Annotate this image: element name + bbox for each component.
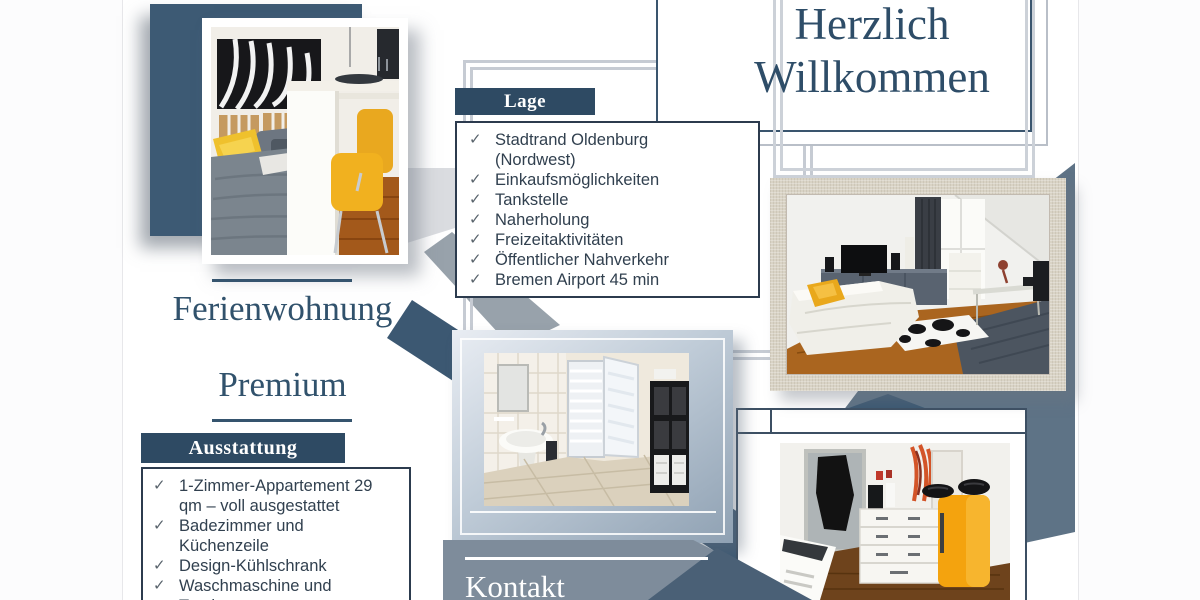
check-icon: ✓ — [469, 210, 495, 230]
welcome-title: Herzlich Willkommen — [686, 0, 1058, 104]
brand-title-line1: Ferienwohnung — [150, 289, 415, 329]
check-icon: ✓ — [153, 576, 179, 600]
check-icon: ✓ — [469, 190, 495, 210]
ausstattung-list: ✓ 1-Zimmer-Appartement 29 qm – voll ausg… — [141, 467, 411, 600]
list-item-text: 1-Zimmer-Appartement 29 qm – voll ausges… — [179, 476, 391, 516]
kitchen-card-hline — [736, 432, 1027, 434]
bedroom-photo-image — [211, 27, 399, 255]
welcome-title-line2: Willkommen — [686, 51, 1058, 104]
list-item-text: Einkaufsmöglichkeiten — [495, 170, 659, 190]
list-item: ✓ Tankstelle — [469, 190, 750, 210]
list-item: ✓ Stadtrand Oldenburg (Nordwest) — [469, 130, 750, 170]
lage-list: ✓ Stadtrand Oldenburg (Nordwest) ✓ Einka… — [455, 121, 760, 298]
check-icon: ✓ — [469, 270, 495, 290]
list-item: ✓ Badezimmer und Küchenzeile — [153, 516, 403, 556]
kitchen-photo-image — [780, 443, 1010, 600]
lage-label: Lage — [455, 88, 595, 115]
bathroom-frame-bottom-line — [470, 511, 716, 513]
decor-light-triangle — [407, 168, 455, 243]
list-item: ✓ Freizeitaktivitäten — [469, 230, 750, 250]
kitchen-photo — [780, 443, 1010, 600]
brand-title: Ferienwohnung Premium — [150, 289, 415, 405]
check-icon: ✓ — [469, 250, 495, 270]
check-icon: ✓ — [469, 170, 495, 190]
list-item: ✓ Bremen Airport 45 min — [469, 270, 750, 290]
bathroom-photo-image — [484, 353, 689, 506]
flyer-canvas: Herzlich Willkommen — [0, 0, 1200, 600]
list-item-text: Naherholung — [495, 210, 590, 230]
list-item: ✓ Design-Kühlschrank — [153, 556, 403, 576]
list-item-text: Stadtrand Oldenburg (Nordwest) — [495, 130, 723, 170]
list-item-text: Freizeitaktivitäten — [495, 230, 623, 250]
kontakt-divider — [465, 557, 708, 560]
check-icon: ✓ — [469, 230, 495, 250]
list-item: ✓ Waschmaschine und Trockner — [153, 576, 403, 600]
list-item-text: Design-Kühlschrank — [179, 556, 327, 576]
list-item: ✓ Einkaufsmöglichkeiten — [469, 170, 750, 190]
welcome-title-line1: Herzlich — [686, 0, 1058, 51]
list-item-text: Waschmaschine und Trockner — [179, 576, 391, 600]
brand-divider-top — [212, 279, 352, 282]
list-item-text: Tankstelle — [495, 190, 568, 210]
check-icon: ✓ — [153, 556, 179, 576]
check-icon: ✓ — [469, 130, 495, 170]
list-item: ✓ Naherholung — [469, 210, 750, 230]
living-room-photo — [770, 178, 1066, 391]
list-item-text: Bremen Airport 45 min — [495, 270, 659, 290]
ausstattung-label: Ausstattung — [141, 433, 345, 463]
kontakt-title: Kontakt — [465, 569, 565, 600]
list-item-text: Öffentlicher Nahverkehr — [495, 250, 669, 270]
list-item: ✓ Öffentlicher Nahverkehr — [469, 250, 750, 270]
list-item-text: Badezimmer und Küchenzeile — [179, 516, 391, 556]
check-icon: ✓ — [153, 476, 179, 516]
bedroom-photo — [202, 18, 408, 264]
living-room-photo-image — [787, 195, 1049, 374]
bathroom-photo — [484, 353, 689, 506]
brand-divider-bottom — [212, 419, 352, 422]
brand-title-line2: Premium — [150, 365, 415, 405]
list-item: ✓ 1-Zimmer-Appartement 29 qm – voll ausg… — [153, 476, 403, 516]
check-icon: ✓ — [153, 516, 179, 556]
kitchen-card-vline — [770, 408, 772, 434]
